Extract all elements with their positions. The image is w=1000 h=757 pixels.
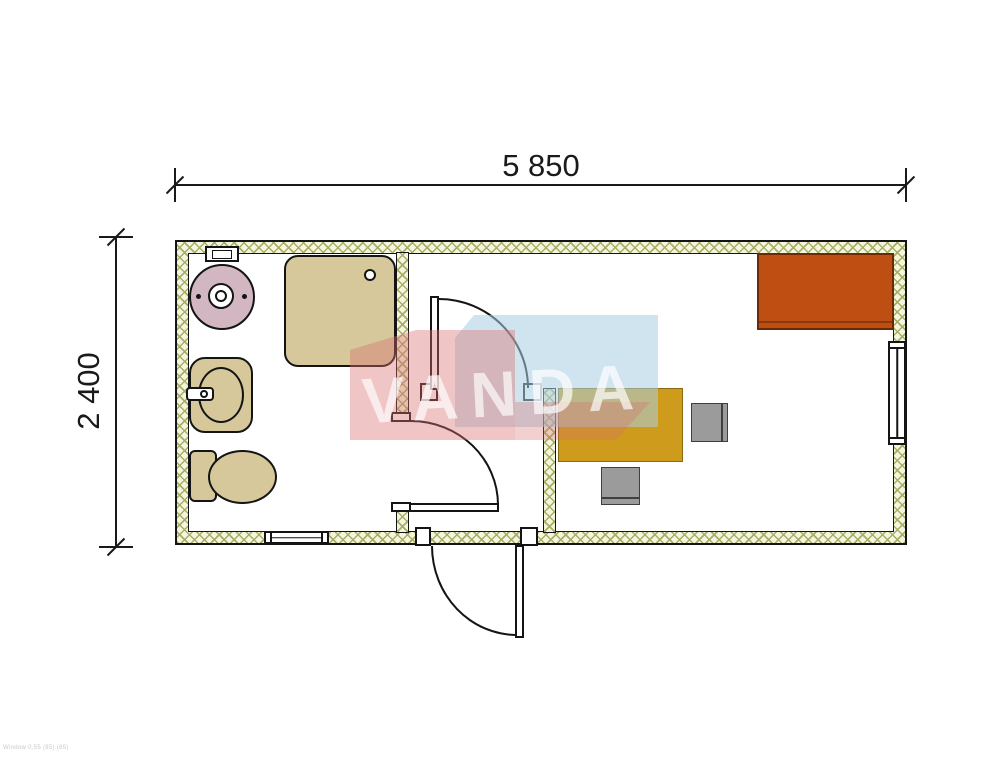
- bathroom-window: [264, 531, 329, 544]
- width-dimension-label: 5 850: [175, 148, 907, 184]
- bathroom-wall-upper: [396, 252, 409, 420]
- office-window-glass: [896, 341, 898, 445]
- desk-chair: [691, 403, 728, 442]
- office-window-jamb-top: [888, 341, 906, 349]
- cabinet-front-edge: [759, 321, 892, 323]
- desk: [558, 388, 683, 462]
- bathroom-window-jamb-left: [264, 531, 272, 544]
- bathroom-window-jamb-right: [321, 531, 329, 544]
- washbasin-tap: [186, 387, 214, 401]
- water-heater-bolt-left: [196, 294, 201, 299]
- washbasin-tap-knob: [200, 390, 208, 398]
- water-heater-bolt-right: [242, 294, 247, 299]
- water-heater-bracket-inner: [212, 250, 232, 259]
- floor-plan-canvas: 5 850 2 400: [0, 0, 1000, 757]
- entrance-door-jamb-right: [520, 527, 538, 546]
- entrance-door-leaf: [515, 545, 524, 638]
- bathroom-door-jamb-bottom: [391, 502, 411, 512]
- shower-tray: [284, 255, 396, 367]
- office-partition-wall: [543, 388, 556, 533]
- bathroom-door-leaf: [409, 503, 499, 512]
- office-window: [888, 341, 906, 445]
- desk-chair-backrest: [721, 404, 723, 441]
- height-dimension-label: 2 400: [71, 352, 107, 430]
- height-dimension-line: [115, 237, 117, 547]
- footer-note: Window 0,55 (85) (85): [3, 745, 69, 751]
- water-heater-hub-inner: [215, 290, 227, 302]
- visitor-chair-backrest: [602, 497, 639, 499]
- bathroom-window-glass: [264, 537, 329, 539]
- cabinet: [757, 253, 894, 330]
- office-door-leaf: [430, 296, 439, 390]
- water-heater-bracket: [205, 246, 239, 262]
- entrance-door-jamb-left: [415, 527, 431, 546]
- bathroom-door-jamb-top: [391, 412, 411, 422]
- office-window-jamb-bottom: [888, 437, 906, 445]
- shower-drain: [364, 269, 376, 281]
- toilet-bowl: [208, 450, 277, 504]
- width-dimension-line: [175, 184, 907, 186]
- entrance-door-swing-arc: [431, 546, 517, 636]
- visitor-chair: [601, 467, 640, 505]
